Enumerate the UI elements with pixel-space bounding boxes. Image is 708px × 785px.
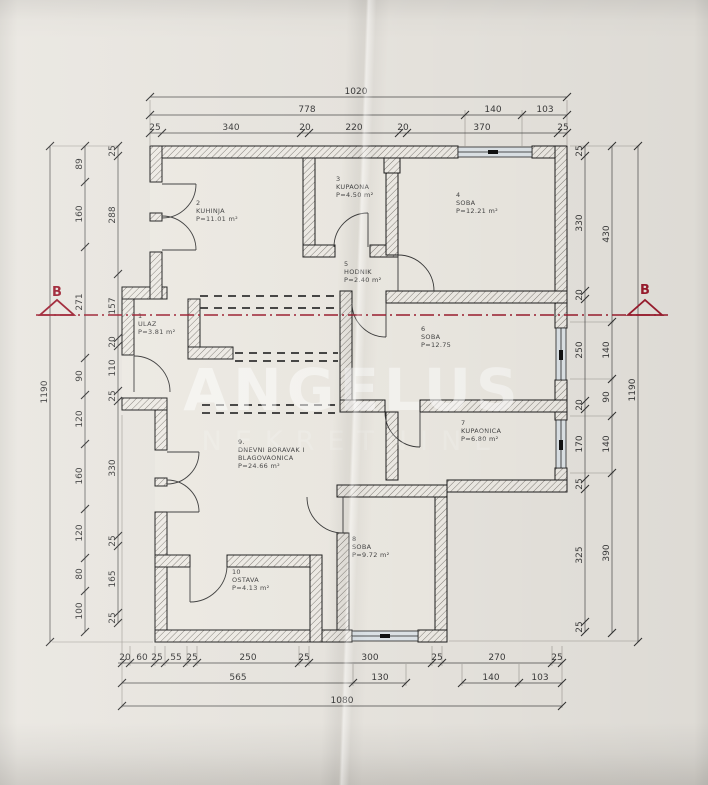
dim-label: 130 — [371, 673, 388, 683]
dim-chain: 2060255525250253002527025 — [118, 653, 566, 667]
dim-label: 340 — [222, 123, 239, 133]
dim-chain: 2533020250201702532525 — [575, 142, 589, 636]
section-marker-right — [628, 300, 662, 315]
dim-label: 250 — [575, 341, 585, 358]
dim-label: 25 — [186, 653, 197, 663]
dim-chain: 1190 — [628, 142, 642, 646]
dim-label: 140 — [602, 341, 612, 358]
dim-label: 170 — [575, 435, 585, 452]
section-label-right: B — [640, 283, 650, 298]
room-label-line: P=3.81 m² — [138, 328, 176, 336]
dim-label: 25 — [551, 653, 562, 663]
watermark-subtitle: NEKRETNINE — [202, 426, 505, 457]
dim-chain: 1020 — [146, 87, 571, 101]
dim-label: 140 — [484, 105, 501, 115]
dim-label: 157 — [108, 297, 118, 314]
dim-chain: 1080 — [118, 696, 566, 710]
dim-label: 55 — [170, 653, 181, 663]
dim-label: 20 — [119, 653, 131, 663]
dim-label: 100 — [75, 602, 85, 619]
room-label-line: SOBA — [456, 199, 476, 207]
dim-label: 25 — [108, 145, 118, 156]
floor-plan-drawing: 1020778140103253402022020370252060255525… — [0, 0, 708, 785]
section-label-left: B — [52, 285, 62, 300]
dim-label: 1190 — [40, 380, 50, 403]
room-label-line: HODNIK — [344, 268, 372, 276]
dim-label: 288 — [108, 206, 118, 223]
dim-label: 270 — [488, 653, 505, 663]
room-label-line: 3 — [336, 175, 340, 183]
dim-label: 90 — [602, 391, 612, 403]
dim-chain: 43014090140390 — [602, 142, 616, 637]
window-bottom — [352, 631, 418, 641]
dim-label: 103 — [531, 673, 548, 683]
room-label-line: SOBA — [352, 543, 372, 551]
dim-label: 89 — [75, 158, 85, 170]
dim-label: 565 — [229, 673, 246, 683]
dim-label: 430 — [602, 225, 612, 242]
window-right-lower — [556, 420, 566, 468]
dim-label: 25 — [575, 621, 585, 632]
dim-label: 1020 — [345, 87, 368, 97]
room-label-line: 8 — [352, 535, 356, 543]
room-label-line: OSTAVA — [232, 576, 259, 584]
dim-chain: 891602719012016012080100 — [75, 142, 89, 636]
dim-label: 250 — [239, 653, 256, 663]
scanned-floor-plan-page: 1020778140103253402022020370252060255525… — [0, 0, 708, 785]
dim-label: 300 — [361, 653, 378, 663]
window-right-upper — [556, 328, 566, 380]
room-label-line: P=11.01 m² — [196, 215, 238, 223]
dim-label: 80 — [75, 568, 85, 580]
room-label-line: SOBA — [421, 333, 441, 341]
dim-label: 25 — [149, 123, 160, 133]
dim-label: 120 — [75, 410, 85, 427]
watermark: ANGELUS NEKRETNINE — [183, 356, 522, 457]
dim-label: 60 — [136, 653, 148, 663]
room-label-line: 4 — [456, 191, 460, 199]
dim-label: 20 — [108, 336, 118, 348]
dim-label: 1080 — [331, 696, 354, 706]
dim-label: 330 — [108, 459, 118, 476]
dim-chain: 2528815720110253302516525 — [108, 142, 122, 627]
room-label-line: 10 — [232, 568, 241, 576]
dim-label: 370 — [473, 123, 490, 133]
dim-label: 25 — [557, 123, 568, 133]
room-label-line: P=9.72 m² — [352, 551, 390, 559]
dim-label: 160 — [75, 205, 85, 222]
dim-label: 325 — [575, 546, 585, 563]
dim-label: 90 — [75, 370, 85, 382]
dim-label: 103 — [536, 105, 553, 115]
room-label-line: 5 — [344, 260, 348, 268]
room-label-line: 6 — [421, 325, 425, 333]
room-label-line: P=4.13 m² — [232, 584, 270, 592]
dim-label: 140 — [482, 673, 499, 683]
room-label-line: P=12.21 m² — [456, 207, 498, 215]
dim-label: 25 — [108, 612, 118, 623]
room-label-line: P=12.75 — [421, 341, 451, 349]
dim-chain: 778140103 — [146, 105, 571, 119]
dim-label: 160 — [75, 467, 85, 484]
dim-label: 120 — [75, 524, 85, 541]
dim-label: 25 — [151, 653, 162, 663]
dim-chain: 25340202202037025 — [146, 123, 571, 137]
dim-label: 25 — [108, 535, 118, 546]
dim-label: 390 — [602, 544, 612, 561]
room-label-line: KUHINJA — [196, 207, 225, 215]
dim-label: 165 — [108, 570, 118, 587]
dim-chain: 1190 — [40, 142, 54, 646]
room-label-line: KUPAONA — [336, 183, 369, 191]
dim-label: 20 — [575, 399, 585, 411]
dim-label: 25 — [108, 390, 118, 401]
dim-label: 25 — [431, 653, 442, 663]
dim-chain: 565130 — [118, 673, 410, 687]
section-marker-left — [40, 300, 74, 315]
room-label-line: P=24.66 m² — [238, 462, 280, 470]
dim-label: 110 — [108, 359, 118, 376]
watermark-title: ANGELUS — [183, 356, 522, 424]
dim-label: 25 — [298, 653, 309, 663]
dim-label: 25 — [575, 478, 585, 489]
dim-label: 20 — [575, 289, 585, 301]
room-label-line: P=2.40 m² — [344, 276, 382, 284]
room-label-line: 1 — [138, 312, 142, 320]
dim-label: 1190 — [628, 378, 638, 401]
dim-label: 140 — [602, 435, 612, 452]
dim-label: 271 — [75, 293, 85, 310]
dim-label: 220 — [345, 123, 362, 133]
room-label-line: ULAZ — [138, 320, 157, 328]
dim-label: 20 — [299, 123, 311, 133]
window-top — [458, 147, 532, 157]
dim-label: 330 — [575, 214, 585, 231]
dim-label: 20 — [397, 123, 409, 133]
room-label-line: P=4.50 m² — [336, 191, 374, 199]
room-label-line: 2 — [196, 199, 200, 207]
dim-chain: 140103 — [458, 673, 566, 687]
dim-label: 25 — [575, 145, 585, 156]
dim-label: 778 — [298, 105, 315, 115]
